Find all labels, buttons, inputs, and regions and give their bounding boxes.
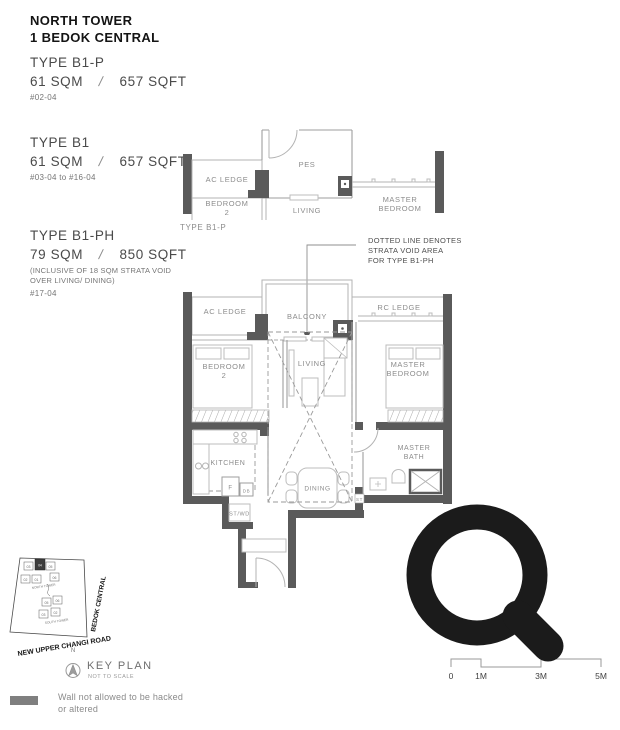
- road-label-bedok-central: BEDOK CENTRAL: [90, 576, 108, 633]
- wall-column: [255, 314, 268, 340]
- balustrade-mark: [412, 179, 415, 182]
- balustrade-mark: [429, 313, 432, 316]
- wall-column: [247, 332, 256, 340]
- wall-post: [183, 154, 192, 214]
- room-label-dining: DINING: [304, 486, 330, 493]
- unit-numbers: #03-04 to #16-04: [30, 173, 187, 182]
- balustrade-line: [352, 182, 435, 187]
- slash: /: [98, 74, 106, 89]
- page-title-line2: 1 BEDOK CENTRAL: [30, 29, 160, 46]
- unit-number: 05: [45, 601, 49, 605]
- unit-type-name: TYPE B1-PH: [30, 228, 187, 244]
- wall-column: [255, 170, 269, 198]
- room-label-ac-ledge: AC LEDGE: [206, 175, 249, 184]
- wardrobe: [192, 410, 269, 422]
- room-label-living: LIVING: [293, 206, 321, 215]
- room-label-master-bath: MASTER: [398, 445, 431, 452]
- tv-console: [289, 350, 294, 396]
- magnifier-icon[interactable]: [402, 500, 570, 672]
- area-sqm: 61 SQM: [30, 74, 83, 89]
- unit-type-b1p-block: TYPE B1-P 61 SQM/657 SQFT #02-04: [30, 55, 187, 102]
- strata-void-note: (INCLUSIVE OF 18 SQM STRATA VOID OVER LI…: [30, 266, 187, 285]
- dining-chair: [286, 472, 297, 485]
- page-title: NORTH TOWER 1 BEDOK CENTRAL: [30, 12, 160, 46]
- key-plan-title: KEY PLAN: [87, 660, 153, 672]
- meter-dot: [341, 327, 344, 330]
- meter-dot: [344, 183, 346, 185]
- legend-text: Wall not allowed to be hacked or altered: [58, 692, 183, 715]
- unit-number: 02: [24, 578, 28, 582]
- room-label-master-bath2: BATH: [404, 454, 425, 461]
- pillow: [224, 348, 249, 359]
- pillow: [389, 348, 413, 359]
- unit-number-highlighted: 04: [38, 564, 42, 568]
- unit-number: 06: [53, 576, 57, 580]
- wall-post: [435, 151, 444, 213]
- scale-tick-1m: 1M: [475, 671, 487, 681]
- sofa: [324, 358, 345, 396]
- area-sqm: 61 SQM: [30, 154, 83, 169]
- wall-vestibule-left: [238, 529, 246, 588]
- unit-type-b1-block: TYPE B1 61 SQM/657 SQFT #03-04 to #16-04: [30, 135, 187, 182]
- unit-type-name: TYPE B1-P: [30, 55, 187, 71]
- wardrobe: [388, 410, 443, 422]
- room-label-ac-ledge: AC LEDGE: [204, 307, 247, 316]
- unit-number: 03: [42, 613, 46, 617]
- balustrade-mark: [392, 179, 395, 182]
- unit-number: 05: [49, 565, 53, 569]
- area-sqft: 657 SQFT: [119, 74, 186, 89]
- slash: /: [98, 247, 106, 262]
- north-letter: N: [63, 648, 83, 654]
- unit-numbers: #17-04: [30, 289, 187, 298]
- label-store: ST: [356, 497, 363, 502]
- page-title-line1: NORTH TOWER: [30, 12, 160, 29]
- dining-chair: [286, 490, 297, 503]
- label-db: DB: [243, 489, 250, 494]
- balustrade-mark: [372, 179, 375, 182]
- wall-stwd-left: [222, 502, 229, 525]
- key-plan-subtitle: NOT TO SCALE: [88, 674, 134, 680]
- sliding-door: [290, 195, 318, 200]
- slash: /: [98, 154, 106, 169]
- top-plan-caption: TYPE B1-P: [180, 223, 226, 232]
- unit-type-area: 79 SQM/850 SQFT: [30, 247, 187, 262]
- wall-bath-top-stub: [355, 422, 363, 430]
- top-plan-type-b1p: AC LEDGE PES BEDROOM 2 LIVING MASTER BED…: [172, 118, 457, 228]
- unit-number: 06: [56, 599, 60, 603]
- scale-tick-0: 0: [449, 671, 454, 681]
- kitchen-counter-top: [193, 430, 257, 444]
- scale-tick-5m: 5M: [595, 671, 607, 681]
- key-plan: 03 04 05 02 01 06 NORTH TOWER 06 05 03 0…: [5, 552, 170, 670]
- wall-vestibule-right: [288, 518, 296, 588]
- room-label-master: MASTER: [383, 195, 418, 204]
- wall-dining-bottom: [288, 510, 364, 518]
- room-label-rc-ledge: RC LEDGE: [377, 303, 420, 312]
- ac-ledge-lines: [192, 297, 262, 335]
- room-label-master: MASTER: [391, 360, 426, 369]
- entry-door-arc: [256, 558, 285, 587]
- room-label-bedroom2-num: 2: [225, 208, 230, 217]
- magnifier-handle: [518, 616, 548, 646]
- unit-number: 01: [35, 578, 39, 582]
- wall-bedroom2-bottom: [183, 422, 269, 430]
- wall-bedroom2-living: [283, 340, 287, 408]
- wall-entry-stub: [238, 582, 258, 588]
- room-label-living: LIVING: [298, 359, 326, 368]
- floorplan-page: NORTH TOWER 1 BEDOK CENTRAL TYPE B1-P 61…: [0, 0, 620, 730]
- label-fridge: F: [228, 486, 232, 492]
- balustrade-mark: [427, 179, 430, 182]
- unit-type-area: 61 SQM/657 SQFT: [30, 74, 187, 89]
- legend-wall-swatch: [10, 696, 38, 705]
- dining-chair: [338, 472, 349, 485]
- road-label-new-upper-changi: NEW UPPER CHANGI ROAD: [17, 635, 111, 658]
- wall-right: [443, 294, 452, 504]
- room-label-bedroom2: BEDROOM: [206, 199, 249, 208]
- room-label-bedroom2: BEDROOM: [203, 362, 246, 371]
- room-label-kitchen: KITCHEN: [211, 460, 246, 467]
- coffee-table: [302, 378, 318, 406]
- wall-left: [183, 292, 192, 504]
- room-label-master2: BEDROOM: [379, 204, 422, 213]
- room-label-bedroom2-num: 2: [222, 371, 227, 380]
- bath-door-arc: [354, 428, 378, 452]
- pillow: [416, 348, 440, 359]
- door-arc: [269, 130, 297, 158]
- pillow: [196, 348, 221, 359]
- balustrade-mark: [392, 313, 395, 316]
- compass-icon: [63, 660, 83, 680]
- balustrade-mark: [412, 313, 415, 316]
- room-label-master2: BEDROOM: [387, 369, 430, 378]
- room-label-balcony: BALCONY: [287, 312, 327, 321]
- toilet: [392, 470, 405, 484]
- room-label-pes: PES: [299, 160, 316, 169]
- unit-type-area: 61 SQM/657 SQFT: [30, 154, 187, 169]
- unit-type-b1ph-block: TYPE B1-PH 79 SQM/850 SQFT (INCLUSIVE OF…: [30, 228, 187, 298]
- unit-type-name: TYPE B1: [30, 135, 187, 151]
- balustrade-mark: [372, 313, 375, 316]
- wall-stwd-bottom: [222, 522, 253, 529]
- wall-column: [248, 190, 256, 198]
- unit-numbers: #02-04: [30, 93, 187, 102]
- shoe-cabinet: [242, 539, 286, 552]
- scale-tick-3m: 3M: [535, 671, 547, 681]
- wall-master-bottom: [376, 422, 452, 430]
- area-sqm: 79 SQM: [30, 247, 83, 262]
- unit-number: 03: [27, 565, 31, 569]
- label-stwd: ST/WD: [229, 512, 250, 518]
- unit-number: 02: [54, 611, 58, 615]
